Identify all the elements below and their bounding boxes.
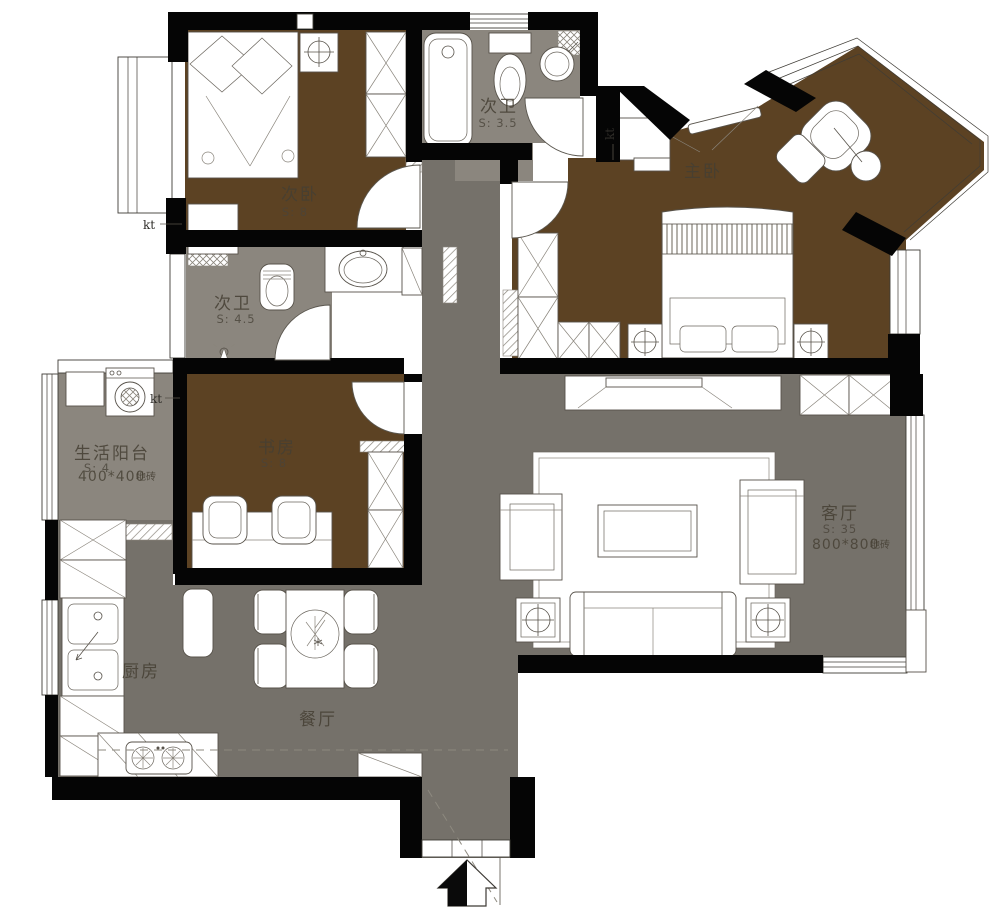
- window-living-right: [906, 415, 924, 612]
- label-dining-room: 餐厅: [299, 710, 337, 730]
- kt-label-master: kt: [603, 128, 617, 140]
- window-bath-top: [468, 14, 530, 28]
- kt-label-left: kt: [143, 218, 155, 232]
- desk-chair: [272, 496, 316, 544]
- label-master-bedroom: 主卧: [684, 162, 722, 182]
- wardrobe-secondary: [366, 32, 406, 157]
- kitchen-door-panel: [183, 589, 213, 657]
- living-cabinet: [800, 375, 898, 415]
- floor-plan: 次卧 S: 8 次卫 S: 3.5 主卧 次卫 S: 4.5 生活阳台 S: 4…: [0, 0, 1000, 913]
- vanity-counter: [325, 246, 403, 292]
- label-secondary-bedroom: 次卧: [281, 185, 319, 205]
- shelf: [402, 248, 422, 295]
- study-wardrobe: [368, 452, 403, 568]
- dining-table: [286, 590, 344, 688]
- area-secondary-bedroom: S: 8: [282, 205, 308, 219]
- window-kitchen-left: [42, 600, 58, 695]
- label-kitchen: 厨房: [122, 662, 160, 682]
- desk-chair: [203, 496, 247, 544]
- area-bath-top: S: 3.5: [478, 116, 517, 130]
- shoe-cabinet: [358, 753, 422, 777]
- kt-label-balcony: kt: [150, 392, 162, 406]
- area-living-room: S: 35: [823, 522, 857, 536]
- sofa: [570, 592, 736, 656]
- area-study: S: 8: [261, 456, 287, 470]
- lamp-table: [516, 598, 560, 642]
- dining-chair: [344, 644, 378, 688]
- squat-toilet: [260, 264, 294, 310]
- entry-arrow-icon: [438, 860, 496, 906]
- gas-stove: [126, 742, 192, 774]
- label-living-room: 客厅: [821, 504, 859, 524]
- dining-chair: [254, 590, 288, 634]
- label-bath-mid: 次卫: [214, 294, 252, 314]
- armchair: [500, 494, 562, 580]
- window-balcony-left: [42, 374, 58, 520]
- side-table: [851, 151, 881, 181]
- window-living-bottom: [823, 657, 907, 673]
- bath-mid-left-duct: [170, 254, 185, 358]
- washing-machine: [106, 368, 154, 416]
- bay-window-left: [118, 57, 172, 213]
- area-bath-mid: S: 4.5: [216, 312, 255, 326]
- dining-chair: [344, 590, 378, 634]
- floor-plan-page: 次卧 S: 8 次卫 S: 3.5 主卧 次卫 S: 4.5 生活阳台 S: 4…: [0, 0, 1000, 913]
- utility-shelf: [66, 372, 104, 406]
- label-study: 书房: [258, 438, 296, 458]
- master-bed: [662, 207, 793, 358]
- armchair: [740, 480, 804, 584]
- lamp-table: [746, 598, 790, 642]
- window-master-right: [890, 250, 920, 334]
- tile-note-balcony: 地砖: [136, 470, 156, 483]
- coffee-table: [598, 505, 697, 557]
- tv-cabinet: [565, 376, 781, 410]
- tile-note-living-room: 地砖: [870, 538, 890, 551]
- label-bath-top: 次卫: [480, 97, 518, 117]
- door-bath-top: [525, 98, 583, 156]
- dining-chair: [254, 644, 288, 688]
- column: [906, 610, 926, 672]
